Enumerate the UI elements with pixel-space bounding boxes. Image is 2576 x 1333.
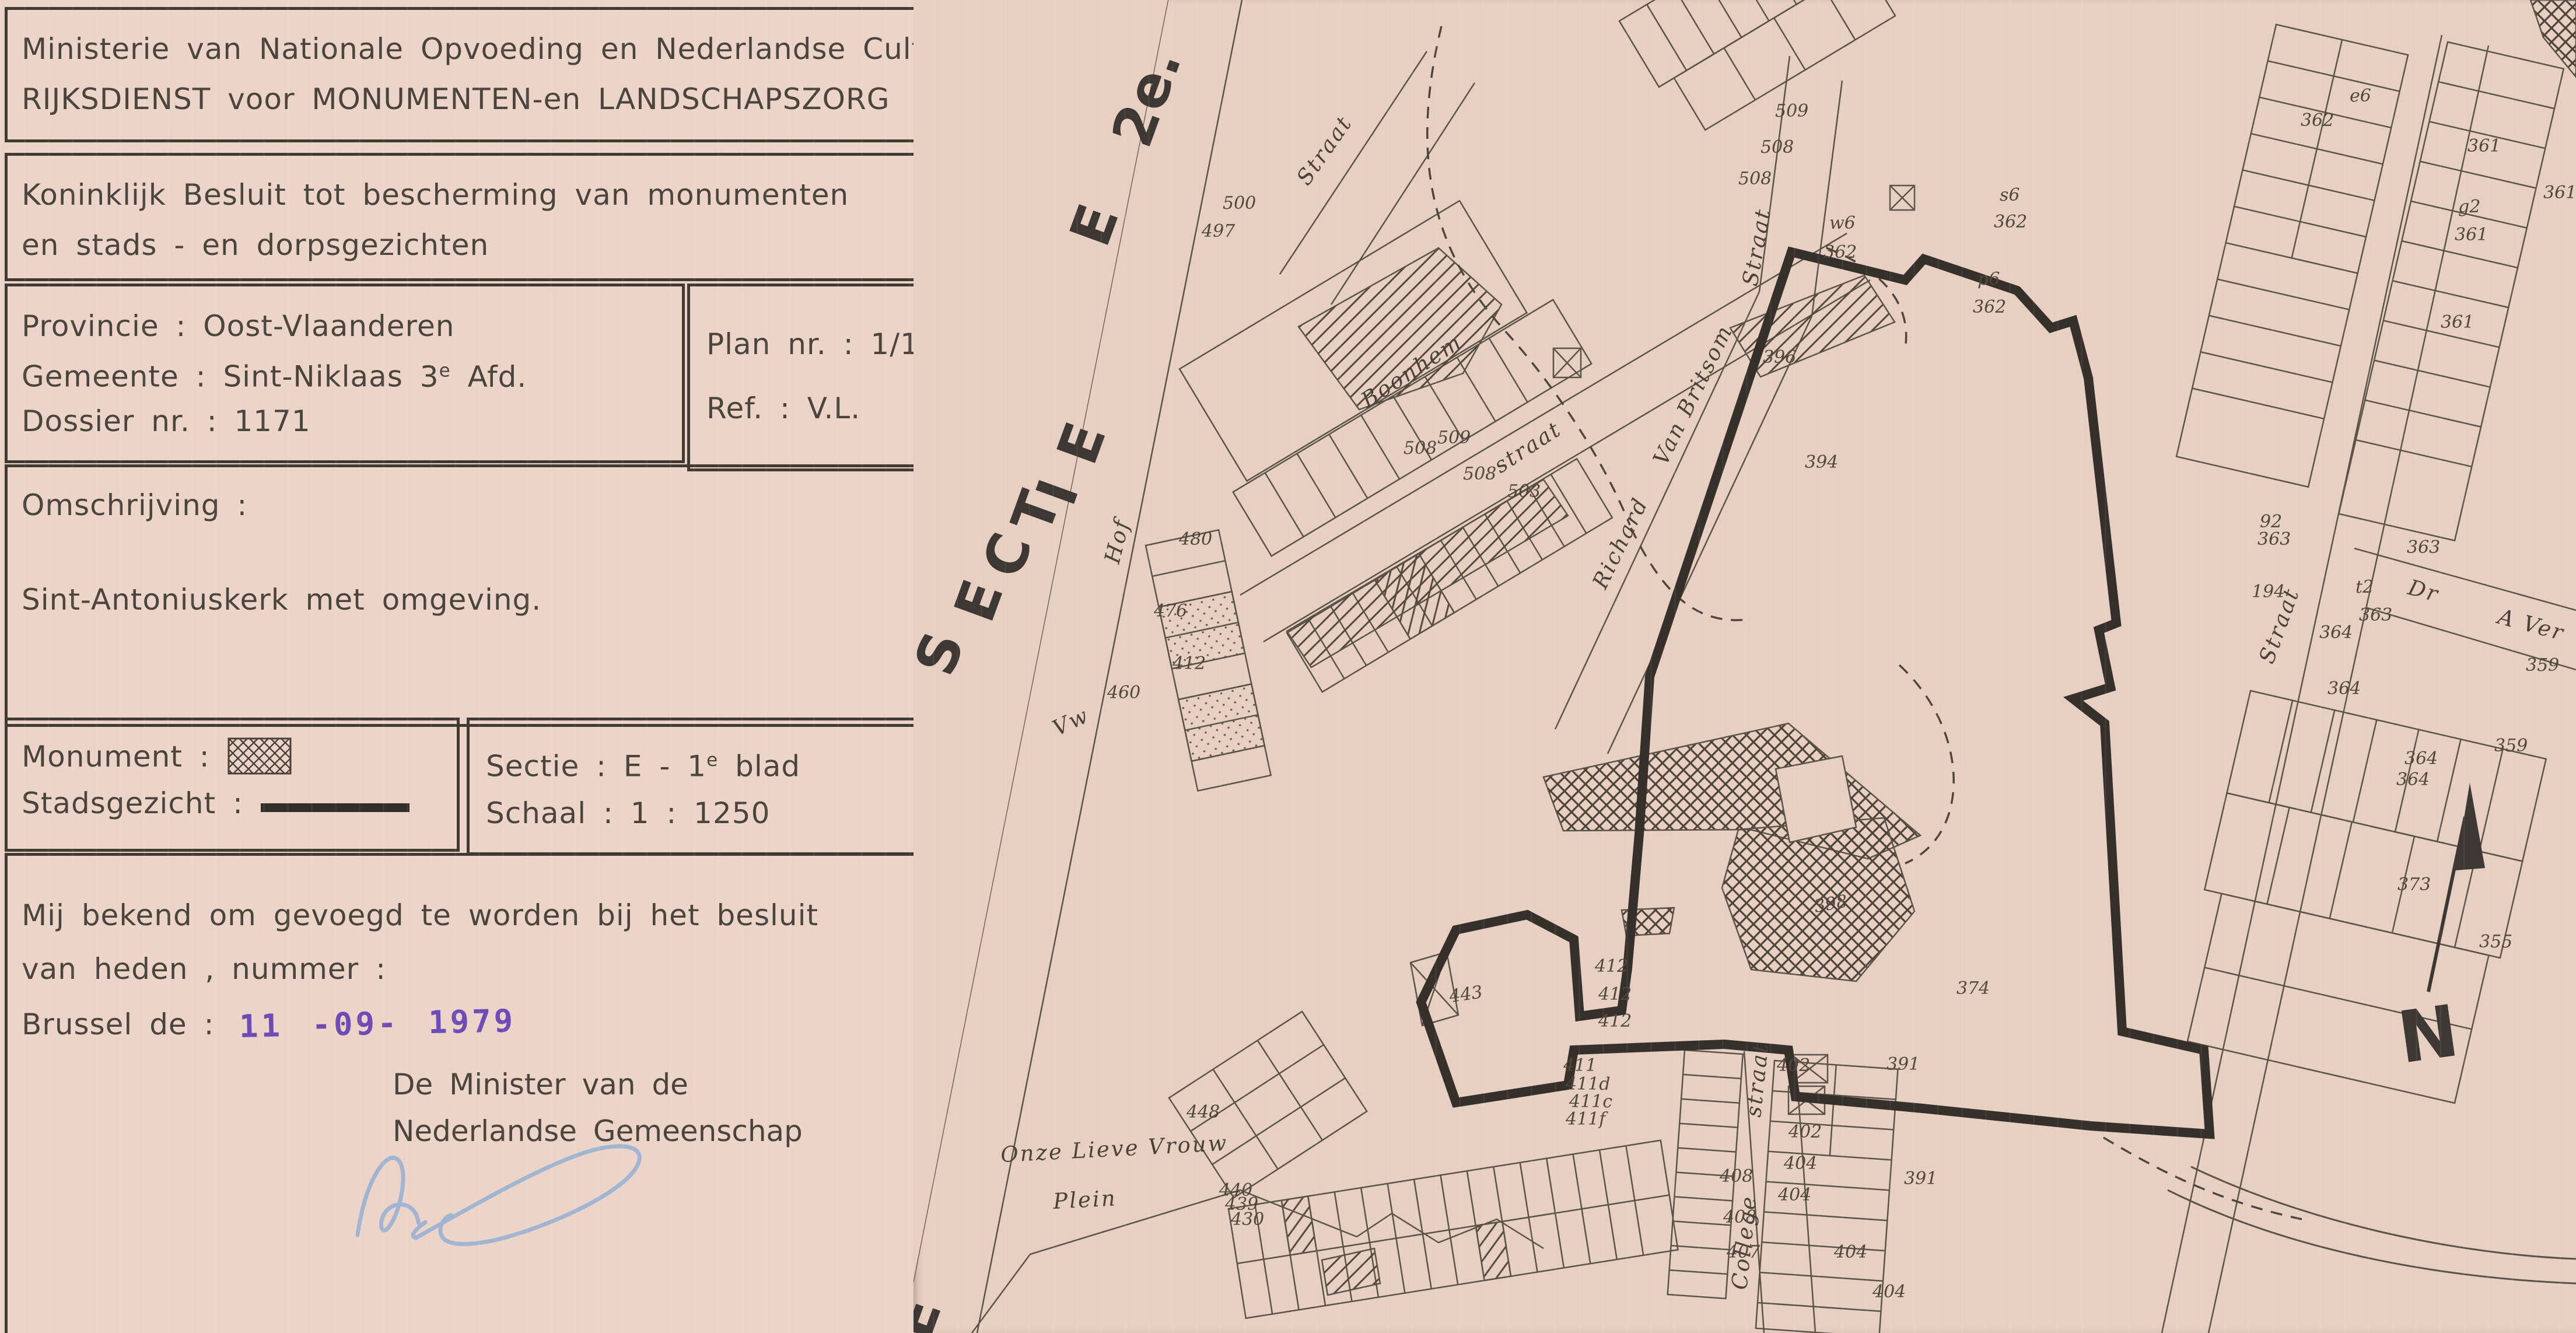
parcel-number: 362 [1994, 212, 2027, 232]
parcel-number: 500 [1223, 193, 1256, 214]
gemeente-label: Gemeente : [22, 360, 206, 394]
street-label: Plein [1052, 1185, 1117, 1214]
sectie-schaal-box: Sectie : E - 1e blad Schaal : 1 : 1250 [467, 718, 930, 855]
north-arrow-icon: N [2393, 783, 2485, 1080]
parcel-number: 361 [2543, 183, 2576, 203]
parcel-number: 364 [2404, 748, 2438, 769]
parcel-number: 373 [2397, 874, 2431, 895]
stadsgezicht-label: Stadsgezicht : [22, 786, 243, 820]
province-row: Provincie : Oost-Vlaanderen [22, 304, 682, 348]
gemeente-afdeling: 3e Afd. [420, 360, 527, 394]
parcel-number: 408 [1719, 1166, 1753, 1187]
parcel-number: 194 [2252, 582, 2285, 602]
parcel-number: 476 [1153, 601, 1187, 621]
street-label: Vw [1049, 702, 1094, 741]
description-label: Omschrijving : [22, 488, 919, 522]
decree-line1: Koninklijk Besluit tot bescherming van m… [22, 170, 919, 220]
street-label: Straat [1291, 111, 1357, 190]
parcel-number: e6 [2350, 86, 2371, 106]
ministry-title: Ministerie van Nationale Opvoeding en Ne… [22, 24, 919, 74]
sectie-row: Sectie : E - 1e blad [486, 737, 927, 790]
parcel-number: 404 [1872, 1282, 1906, 1302]
parcel-number: s6 [2000, 185, 2020, 205]
monument-hatch-icon [228, 737, 293, 776]
parcel-number: 362 [2301, 110, 2334, 131]
parcel-number: 412 [1594, 956, 1628, 977]
ref-row: Ref. : V.L. [706, 376, 927, 440]
parcel-blocks [1146, 0, 2564, 1333]
description-box: Omschrijving : Sint-Antoniuskerk met omg… [5, 464, 922, 727]
street-label: Onze Lieve Vrouw [1000, 1131, 1228, 1167]
parcel-number: 391 [1887, 1054, 1920, 1075]
section-letter: E [914, 1289, 954, 1333]
parcel-number: 374 [1957, 978, 1990, 999]
parcel-number: 363 [2257, 529, 2291, 550]
title-panel: Ministerie van Nationale Opvoeding en Ne… [0, 0, 914, 1333]
parcel-number: p6 [1978, 269, 2000, 289]
north-label: N [2393, 989, 2463, 1080]
parcel-number: 394 [1805, 452, 1838, 473]
parcel-number: 363 [2359, 605, 2392, 625]
parcel-number: 412 [1172, 653, 1206, 674]
parcel-number: 362 [1824, 242, 1857, 263]
parcel-number: 361 [2467, 136, 2501, 156]
parcel-number: 359 [2526, 655, 2559, 676]
parcel-number: 404 [1833, 1242, 1867, 1262]
parcel-number: 509 [1437, 428, 1471, 448]
monument-crosshatch [1543, 0, 2576, 981]
parcel-number: 460 [1107, 683, 1140, 703]
monument-label: Monument : [22, 740, 210, 774]
declaration-box: Mij bekend om gevoegd te worden bij het … [5, 853, 922, 1333]
parcel-number: 404 [1783, 1153, 1817, 1174]
parcel-number: 412 [1598, 1011, 1632, 1031]
parcel-number: 509 [1775, 101, 1808, 121]
bottom-right-curves [2168, 1167, 2576, 1283]
parcel-number: 412 [1598, 984, 1632, 1005]
street-label: Straat [1738, 206, 1776, 288]
street-label: Hof [1100, 515, 1135, 567]
dossier-value: 1171 [235, 404, 311, 438]
signature [8, 856, 905, 1326]
map-canvas: N SECTIEE2e.E StraatHofBoonhemstraatRich… [914, 0, 2576, 1333]
plan-row: Plan nr. : 1/1 [706, 312, 927, 376]
street-label: Richard [1587, 493, 1653, 593]
cadastral-map: N SECTIEE2e.E StraatHofBoonhemstraatRich… [914, 0, 2576, 1333]
decree-line2: en stads - en dorpsgezichten [22, 220, 919, 270]
parcel-number: 480 [1178, 529, 1212, 550]
parcel-number: 443 [1447, 982, 1484, 1007]
location-box: Provincie : Oost-Vlaanderen Gemeente : S… [5, 284, 685, 463]
parcel-number: 411f [1565, 1109, 1608, 1129]
parcel-number: 361 [2441, 312, 2474, 333]
stadsgezicht-legend-row: Stadsgezicht : [22, 780, 457, 827]
parcel-number: 402 [1776, 1055, 1810, 1076]
parcel-number: 404 [1777, 1185, 1811, 1205]
ref-label: Ref. : [706, 391, 790, 425]
dossier-label: Dossier nr. : [22, 404, 218, 438]
parcel-number: 448 [1186, 1102, 1220, 1122]
parcel-number: 396 [1763, 347, 1796, 368]
agency-title: RIJKSDIENST voor MONUMENTEN-en LANDSCHAP… [22, 74, 919, 124]
parcel-number: 411 [1563, 1055, 1597, 1076]
plan-ref-box: Plan nr. : 1/1 Ref. : V.L. [687, 284, 930, 471]
stadsgezicht-boundary [1421, 252, 2210, 1134]
parcel-number: 391 [1904, 1168, 1937, 1189]
parcel-number: 359 [2494, 736, 2528, 756]
dossier-row: Dossier nr. : 1171 [22, 399, 682, 443]
parcel-number: 503 [1507, 481, 1541, 502]
plan-label: Plan nr. : [706, 327, 854, 361]
street-lines [914, 0, 2576, 1333]
parcel-number: 408 [1723, 1207, 1756, 1227]
parcel-number: 364 [2319, 622, 2353, 643]
decree-box: Koninklijk Besluit tot bescherming van m… [5, 153, 922, 281]
gemeente-value: Sint-Niklaas [223, 360, 402, 394]
parcel-number: 364 [2396, 769, 2430, 790]
parcel-number: 508 [1463, 464, 1496, 484]
plan-value: 1/1 [870, 327, 919, 361]
parcel-number: 364 [2327, 678, 2361, 699]
parcel-number: g2 [2458, 197, 2480, 217]
parcel-number: 362 [1973, 297, 2006, 317]
scanned-plan-document: Ministerie van Nationale Opvoeding en Ne… [0, 0, 2576, 1333]
parcel-number: 363 [2407, 537, 2440, 558]
street-label: A Ver [2494, 603, 2567, 645]
street-label: straat [1741, 1041, 1773, 1118]
parcel-number: 402 [1788, 1122, 1822, 1142]
schaal-row: Schaal : 1 : 1250 [486, 790, 927, 837]
parcel-number: t2 [2355, 577, 2374, 597]
parcel-number: 430 [1230, 1209, 1264, 1230]
parcel-number: 407 [1726, 1242, 1760, 1262]
stadsgezicht-line-icon [261, 803, 409, 812]
gemeente-row: Gemeente : Sint-Niklaas 3e Afd. [22, 348, 682, 399]
province-label: Provincie : [22, 309, 186, 343]
description-value: Sint-Antoniuskerk met omgeving. [22, 583, 919, 617]
legend-box: Monument : Stadsgezicht : [5, 718, 460, 852]
parcel-number: 508 [1760, 137, 1794, 158]
parcel-number: 361 [2455, 225, 2488, 245]
province-value: Oost-Vlaanderen [203, 309, 454, 343]
parcel-number: w6 [1829, 213, 1856, 233]
parcel-number: 497 [1201, 221, 1235, 242]
parcel-number: 508 [1403, 438, 1437, 459]
monument-legend-row: Monument : [22, 733, 457, 780]
parcel-number: 355 [2479, 932, 2512, 952]
parcel-number: 508 [1738, 169, 1772, 189]
street-label: Dr [2405, 575, 2442, 607]
header-box: Ministerie van Nationale Opvoeding en Ne… [5, 7, 922, 142]
ref-value: V.L. [807, 391, 860, 425]
